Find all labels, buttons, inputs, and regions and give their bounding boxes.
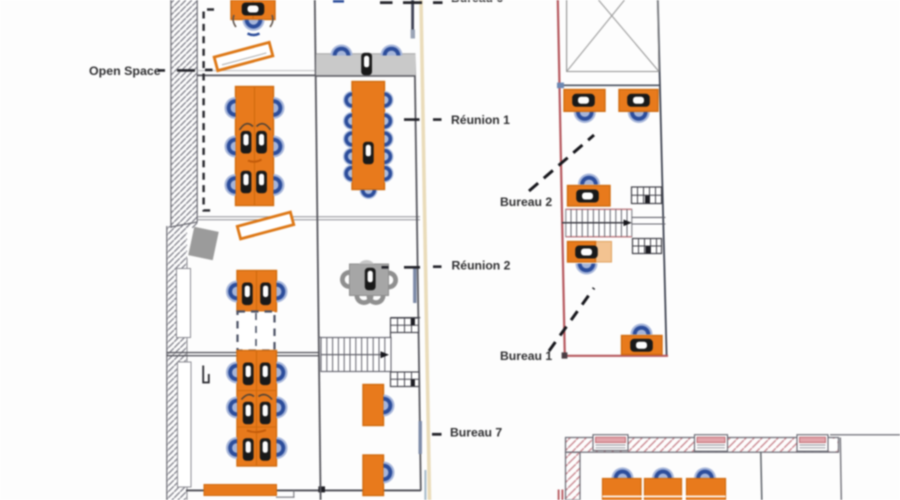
svg-text:Réunion 1: Réunion 1 xyxy=(451,113,510,127)
svg-text:Bureau 7: Bureau 7 xyxy=(450,426,502,440)
svg-text:Open Space: Open Space xyxy=(89,64,161,78)
svg-text:Bureau 1: Bureau 1 xyxy=(500,349,552,363)
svg-text:Bureau 6: Bureau 6 xyxy=(451,0,503,5)
svg-text:Réunion 2: Réunion 2 xyxy=(452,259,511,273)
svg-text:Bureau 2: Bureau 2 xyxy=(500,195,552,209)
